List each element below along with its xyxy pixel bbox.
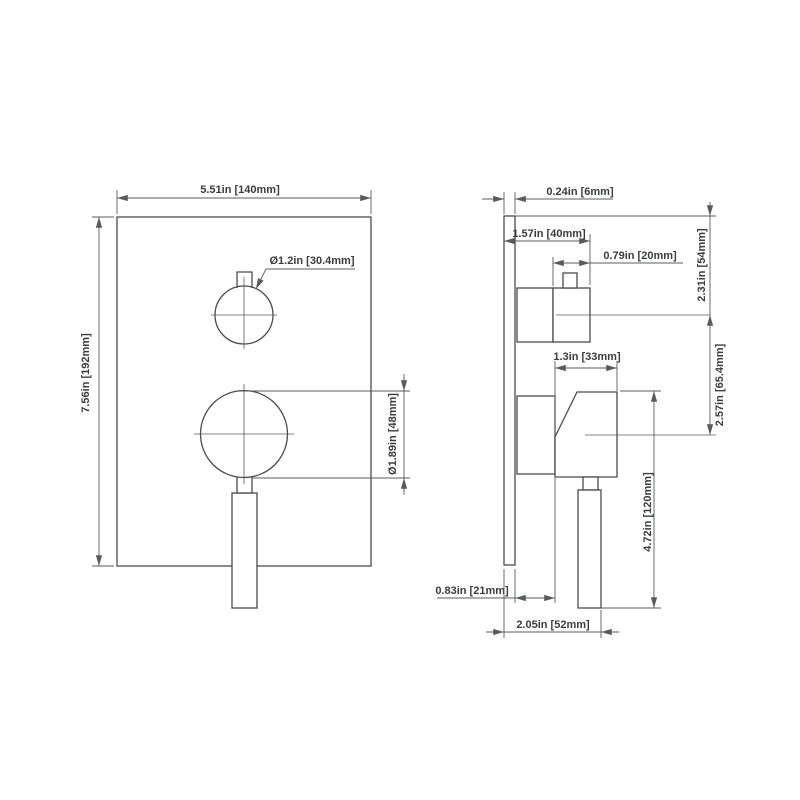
front-handle: [232, 493, 257, 608]
body-depth-label: 1.3in [33mm]: [553, 351, 621, 363]
side-view: 0.24in [6mm] 1.57in [40mm] 0.79in [20mm]…: [435, 186, 726, 638]
technical-drawing: 5.51in [140mm] 7.56in [192mm] Ø1.2in [30…: [0, 0, 800, 800]
side-handle: [578, 490, 601, 608]
knob-center-spacing-label: 2.57in [65.4mm]: [714, 343, 726, 426]
plate-to-body-label: 0.83in [21mm]: [435, 585, 509, 597]
side-handle-neck: [583, 477, 598, 490]
dim-plate-thickness: 0.24in [6mm]: [482, 186, 614, 214]
front-view: 5.51in [140mm] 7.56in [192mm] Ø1.2in [30…: [80, 184, 410, 608]
knob-projection-label: 1.57in [40mm]: [512, 228, 586, 240]
knob-diameter-label: Ø1.2in [30.4mm]: [270, 255, 355, 267]
side-plate: [504, 216, 515, 565]
plate-thickness-label: 0.24in [6mm]: [546, 186, 614, 198]
side-view-outline: [504, 216, 617, 608]
front-handle-neck: [237, 477, 252, 493]
side-knob-adapter: [517, 288, 553, 342]
dim-plate-to-body: 0.83in [21mm]: [435, 478, 555, 603]
handle-length-label: 4.72in [120mm]: [642, 472, 654, 552]
knob-depth-label: 0.79in [20mm]: [603, 250, 677, 262]
hub-diameter-label: Ø1.89in [48mm]: [387, 393, 399, 475]
dim-front-width: 5.51in [140mm]: [117, 184, 371, 214]
drawing-canvas: 5.51in [140mm] 7.56in [192mm] Ø1.2in [30…: [0, 0, 800, 800]
side-body-adapter: [517, 396, 555, 474]
front-height-label: 7.56in [192mm]: [80, 333, 92, 413]
total-projection-label: 2.05in [52mm]: [516, 619, 590, 631]
dim-front-height: 7.56in [192mm]: [80, 217, 114, 566]
top-to-knob-center-label: 2.31in [54mm]: [696, 228, 708, 302]
side-knob-tab: [563, 273, 577, 288]
side-valve-body: [555, 392, 617, 477]
knob-diameter-leader: [256, 269, 355, 289]
front-width-label: 5.51in [140mm]: [200, 184, 280, 196]
label-knob-diameter: Ø1.2in [30.4mm]: [256, 255, 355, 289]
